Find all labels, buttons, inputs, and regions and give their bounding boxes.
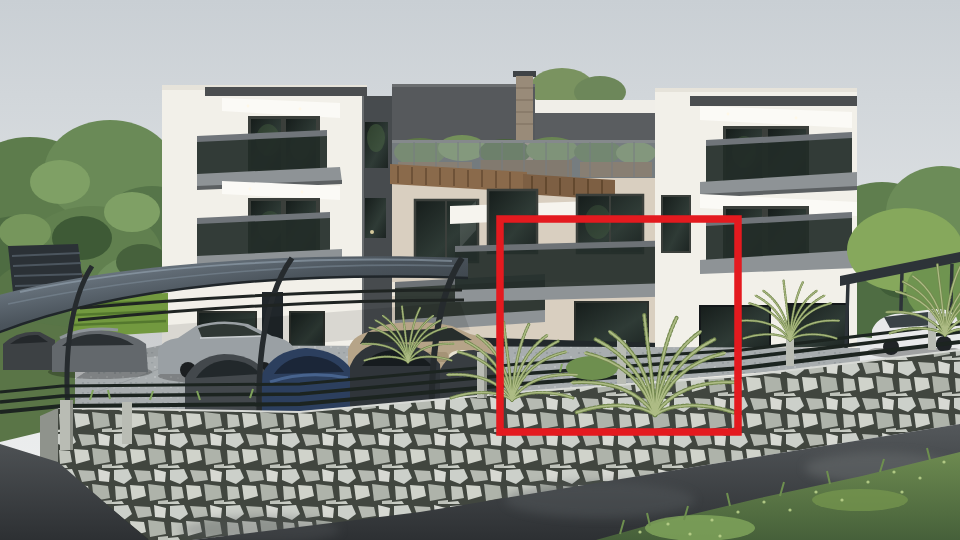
rendering-image [0, 0, 960, 540]
roof-fascia [205, 87, 367, 96]
balcony-right-upper [700, 106, 857, 198]
balcony-right-lower [700, 194, 857, 274]
roof-fascia [690, 96, 857, 106]
window [662, 196, 690, 252]
stairwell-window [365, 198, 386, 238]
scene-canvas [0, 0, 960, 540]
